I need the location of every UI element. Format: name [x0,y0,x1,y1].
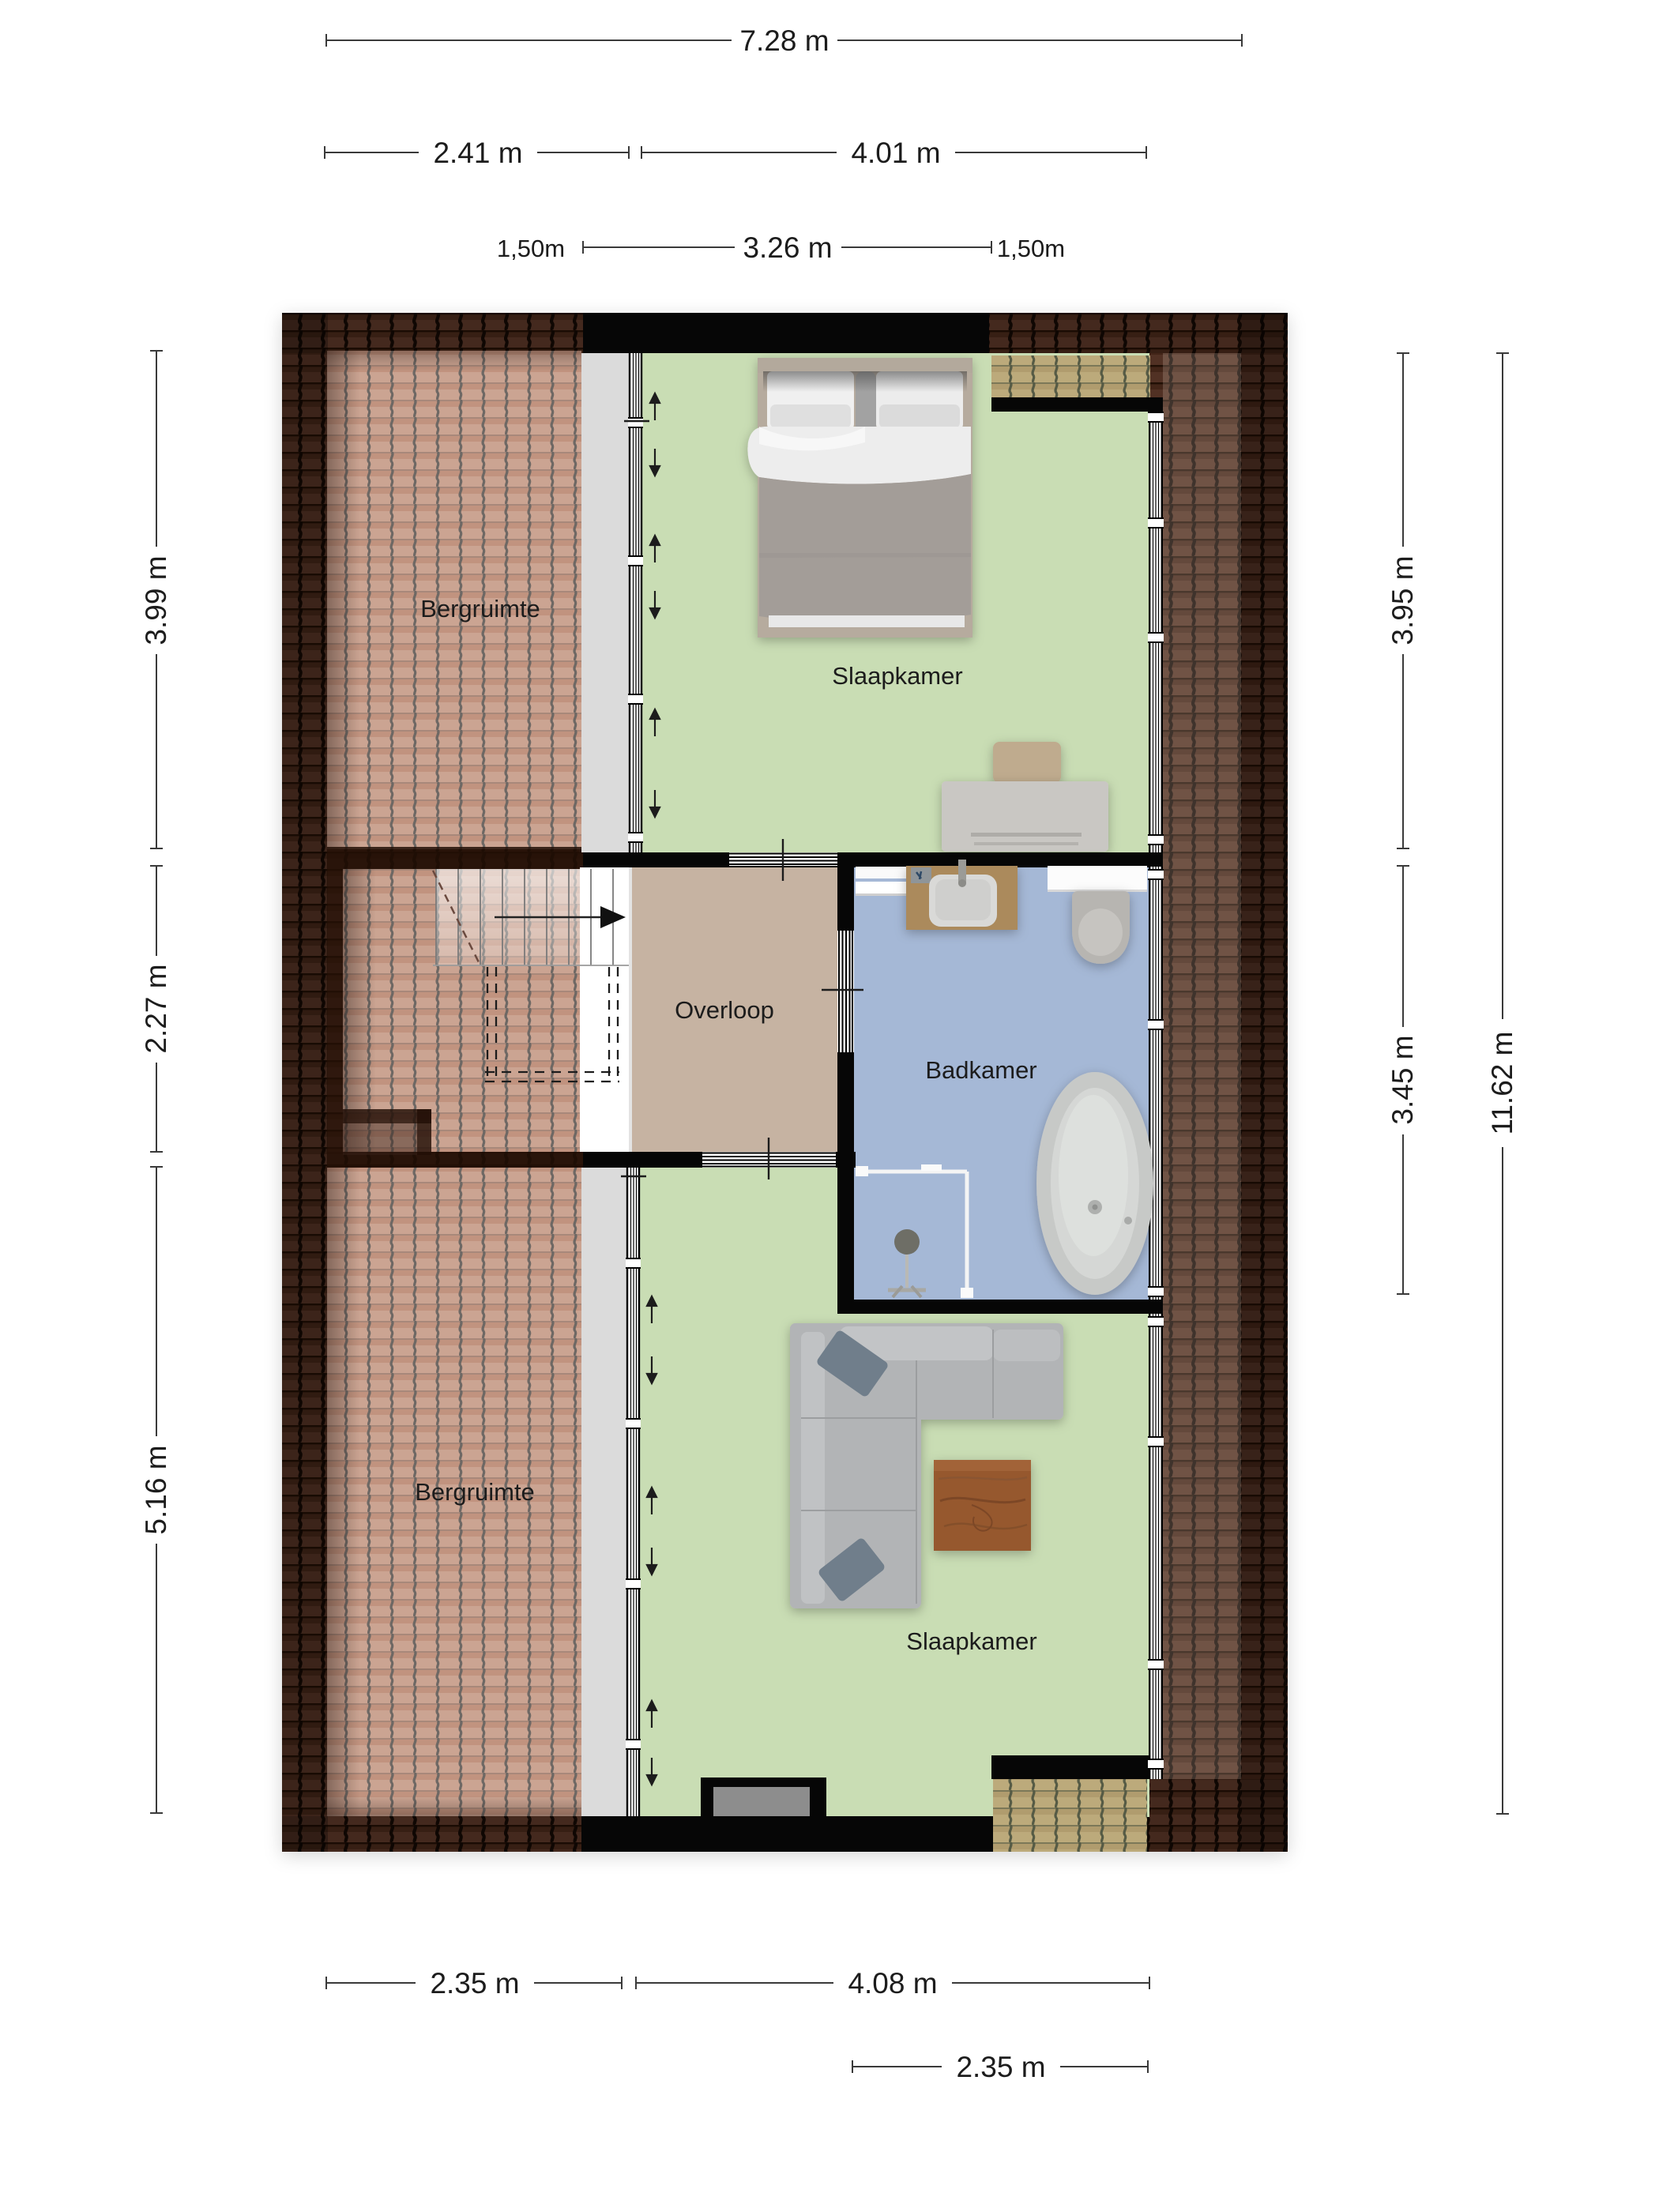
svg-text:Overloop: Overloop [675,996,774,1024]
svg-text:2.35 m: 2.35 m [430,1967,519,1999]
svg-text:3.95 m: 3.95 m [1386,555,1419,645]
svg-text:Slaapkamer: Slaapkamer [832,662,962,690]
svg-text:1,50m: 1,50m [497,235,565,262]
svg-text:7.28 m: 7.28 m [739,24,829,57]
svg-text:4.01 m: 4.01 m [851,137,940,169]
svg-text:5.16 m: 5.16 m [140,1445,172,1534]
svg-text:2.41 m: 2.41 m [433,137,522,169]
svg-text:Slaapkamer: Slaapkamer [906,1627,1036,1655]
svg-text:Bergruimte: Bergruimte [415,1478,535,1506]
svg-text:Badkamer: Badkamer [925,1056,1036,1084]
svg-text:3.99 m: 3.99 m [140,555,172,645]
svg-text:1,50m: 1,50m [997,235,1065,262]
svg-text:3.26 m: 3.26 m [743,231,832,264]
svg-text:11.62 m: 11.62 m [1486,1032,1518,1135]
svg-text:2.27 m: 2.27 m [140,964,172,1053]
svg-text:3.45 m: 3.45 m [1386,1035,1419,1124]
svg-text:4.08 m: 4.08 m [848,1967,937,1999]
svg-text:2.35 m: 2.35 m [956,2051,1045,2083]
svg-text:Bergruimte: Bergruimte [420,595,540,623]
